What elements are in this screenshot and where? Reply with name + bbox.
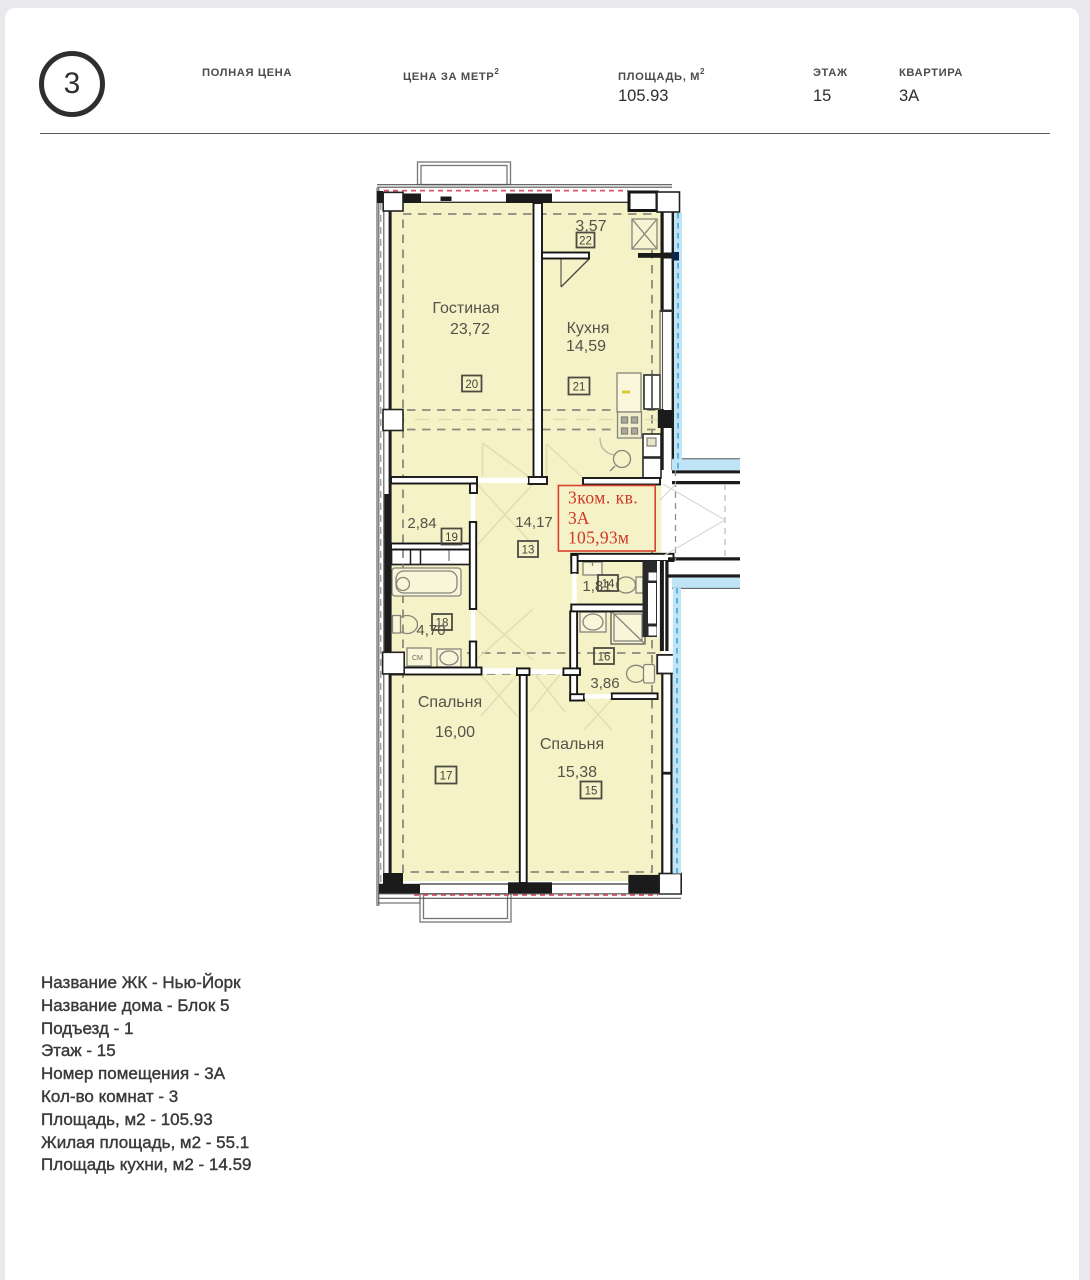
svg-text:Спальня: Спальня <box>418 694 482 711</box>
svg-text:19: 19 <box>445 532 458 544</box>
svg-text:15,38: 15,38 <box>557 764 597 781</box>
svg-text:Спальня: Спальня <box>540 736 604 753</box>
svg-text:16,00: 16,00 <box>435 724 475 741</box>
svg-text:14: 14 <box>602 579 615 591</box>
svg-text:15: 15 <box>585 786 598 798</box>
svg-text:18: 18 <box>436 618 449 630</box>
svg-text:Кухня: Кухня <box>567 320 610 337</box>
svg-text:Гостиная: Гостиная <box>432 300 499 317</box>
svg-text:3А: 3А <box>568 508 590 528</box>
svg-text:3,86: 3,86 <box>590 675 619 692</box>
svg-text:3ком. кв.: 3ком. кв. <box>568 488 638 508</box>
svg-text:22: 22 <box>579 236 592 248</box>
svg-text:14,17: 14,17 <box>515 514 553 531</box>
svg-text:СМ: СМ <box>412 655 423 662</box>
svg-text:17: 17 <box>440 771 453 783</box>
svg-text:13: 13 <box>522 545 535 557</box>
svg-text:2,84: 2,84 <box>407 515 436 532</box>
svg-text:20: 20 <box>465 379 478 391</box>
svg-text:23,72: 23,72 <box>450 321 490 338</box>
svg-text:21: 21 <box>573 382 586 394</box>
svg-text:16: 16 <box>598 652 611 664</box>
svg-text:105,93м: 105,93м <box>568 528 629 548</box>
svg-text:14,59: 14,59 <box>566 338 606 355</box>
